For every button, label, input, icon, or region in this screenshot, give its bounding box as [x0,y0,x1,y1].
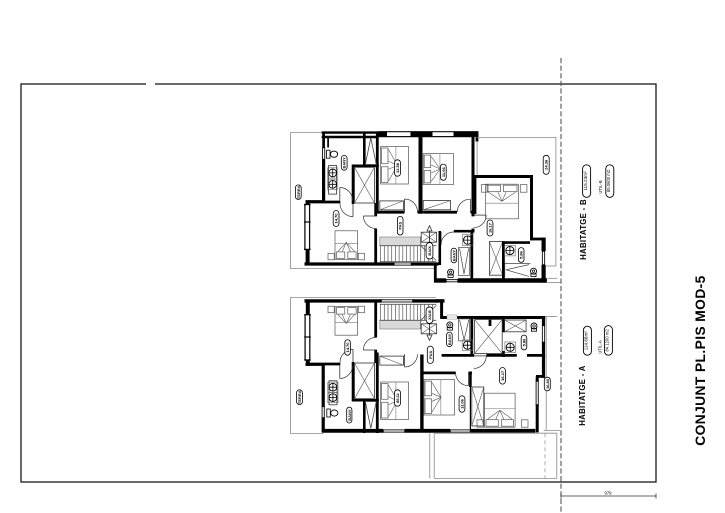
svg-text:CONJUNT PL.PIS MOD-5: CONJUNT PL.PIS MOD-5 [693,275,708,446]
svg-text:UTIL-B: UTIL-B [598,180,603,193]
svg-text:HABITATGE - B: HABITATGE - B [579,199,588,260]
svg-text:12.58: 12.58 [395,162,400,173]
svg-text:PAS: PAS [428,351,433,359]
svg-text:11.06: 11.06 [460,398,465,409]
svg-text:16.80: 16.80 [545,378,550,389]
svg-text:16.17: 16.17 [500,370,505,381]
svg-text:BANY: BANY [347,409,352,421]
svg-text:BAIX: BAIX [427,246,432,256]
svg-text:14.70: 14.70 [334,213,339,224]
svg-text:84.1200 m2: 84.1200 m2 [605,329,610,352]
svg-text:BANY: BANY [447,333,452,345]
svg-text:85.0600 m2: 85.0600 m2 [606,169,611,192]
svg-text:TERRA: TERRA [296,185,301,199]
svg-text:BAIX: BAIX [427,310,432,320]
svg-text:BANY: BANY [451,250,456,262]
svg-text:HABITATGE - A: HABITATGE - A [578,365,587,426]
svg-text:PAS: PAS [398,221,403,229]
svg-text:BANY: BANY [342,157,347,169]
svg-text:24.36: 24.36 [544,159,549,170]
svg-text:TERRA: TERRA [297,390,302,404]
svg-text:12.58: 12.58 [395,393,400,404]
svg-text:5.86: 5.86 [519,250,524,259]
svg-text:UTIL-A: UTIL-A [598,340,603,353]
svg-text:16.17: 16.17 [488,222,493,233]
svg-text:14.70: 14.70 [345,342,350,353]
svg-text:11.06: 11.06 [441,167,446,178]
svg-text:979: 979 [605,491,613,496]
svg-text:114.68m²: 114.68m² [584,331,589,351]
svg-text:115.23m²: 115.23m² [583,171,588,191]
svg-text:5.86: 5.86 [522,338,527,347]
